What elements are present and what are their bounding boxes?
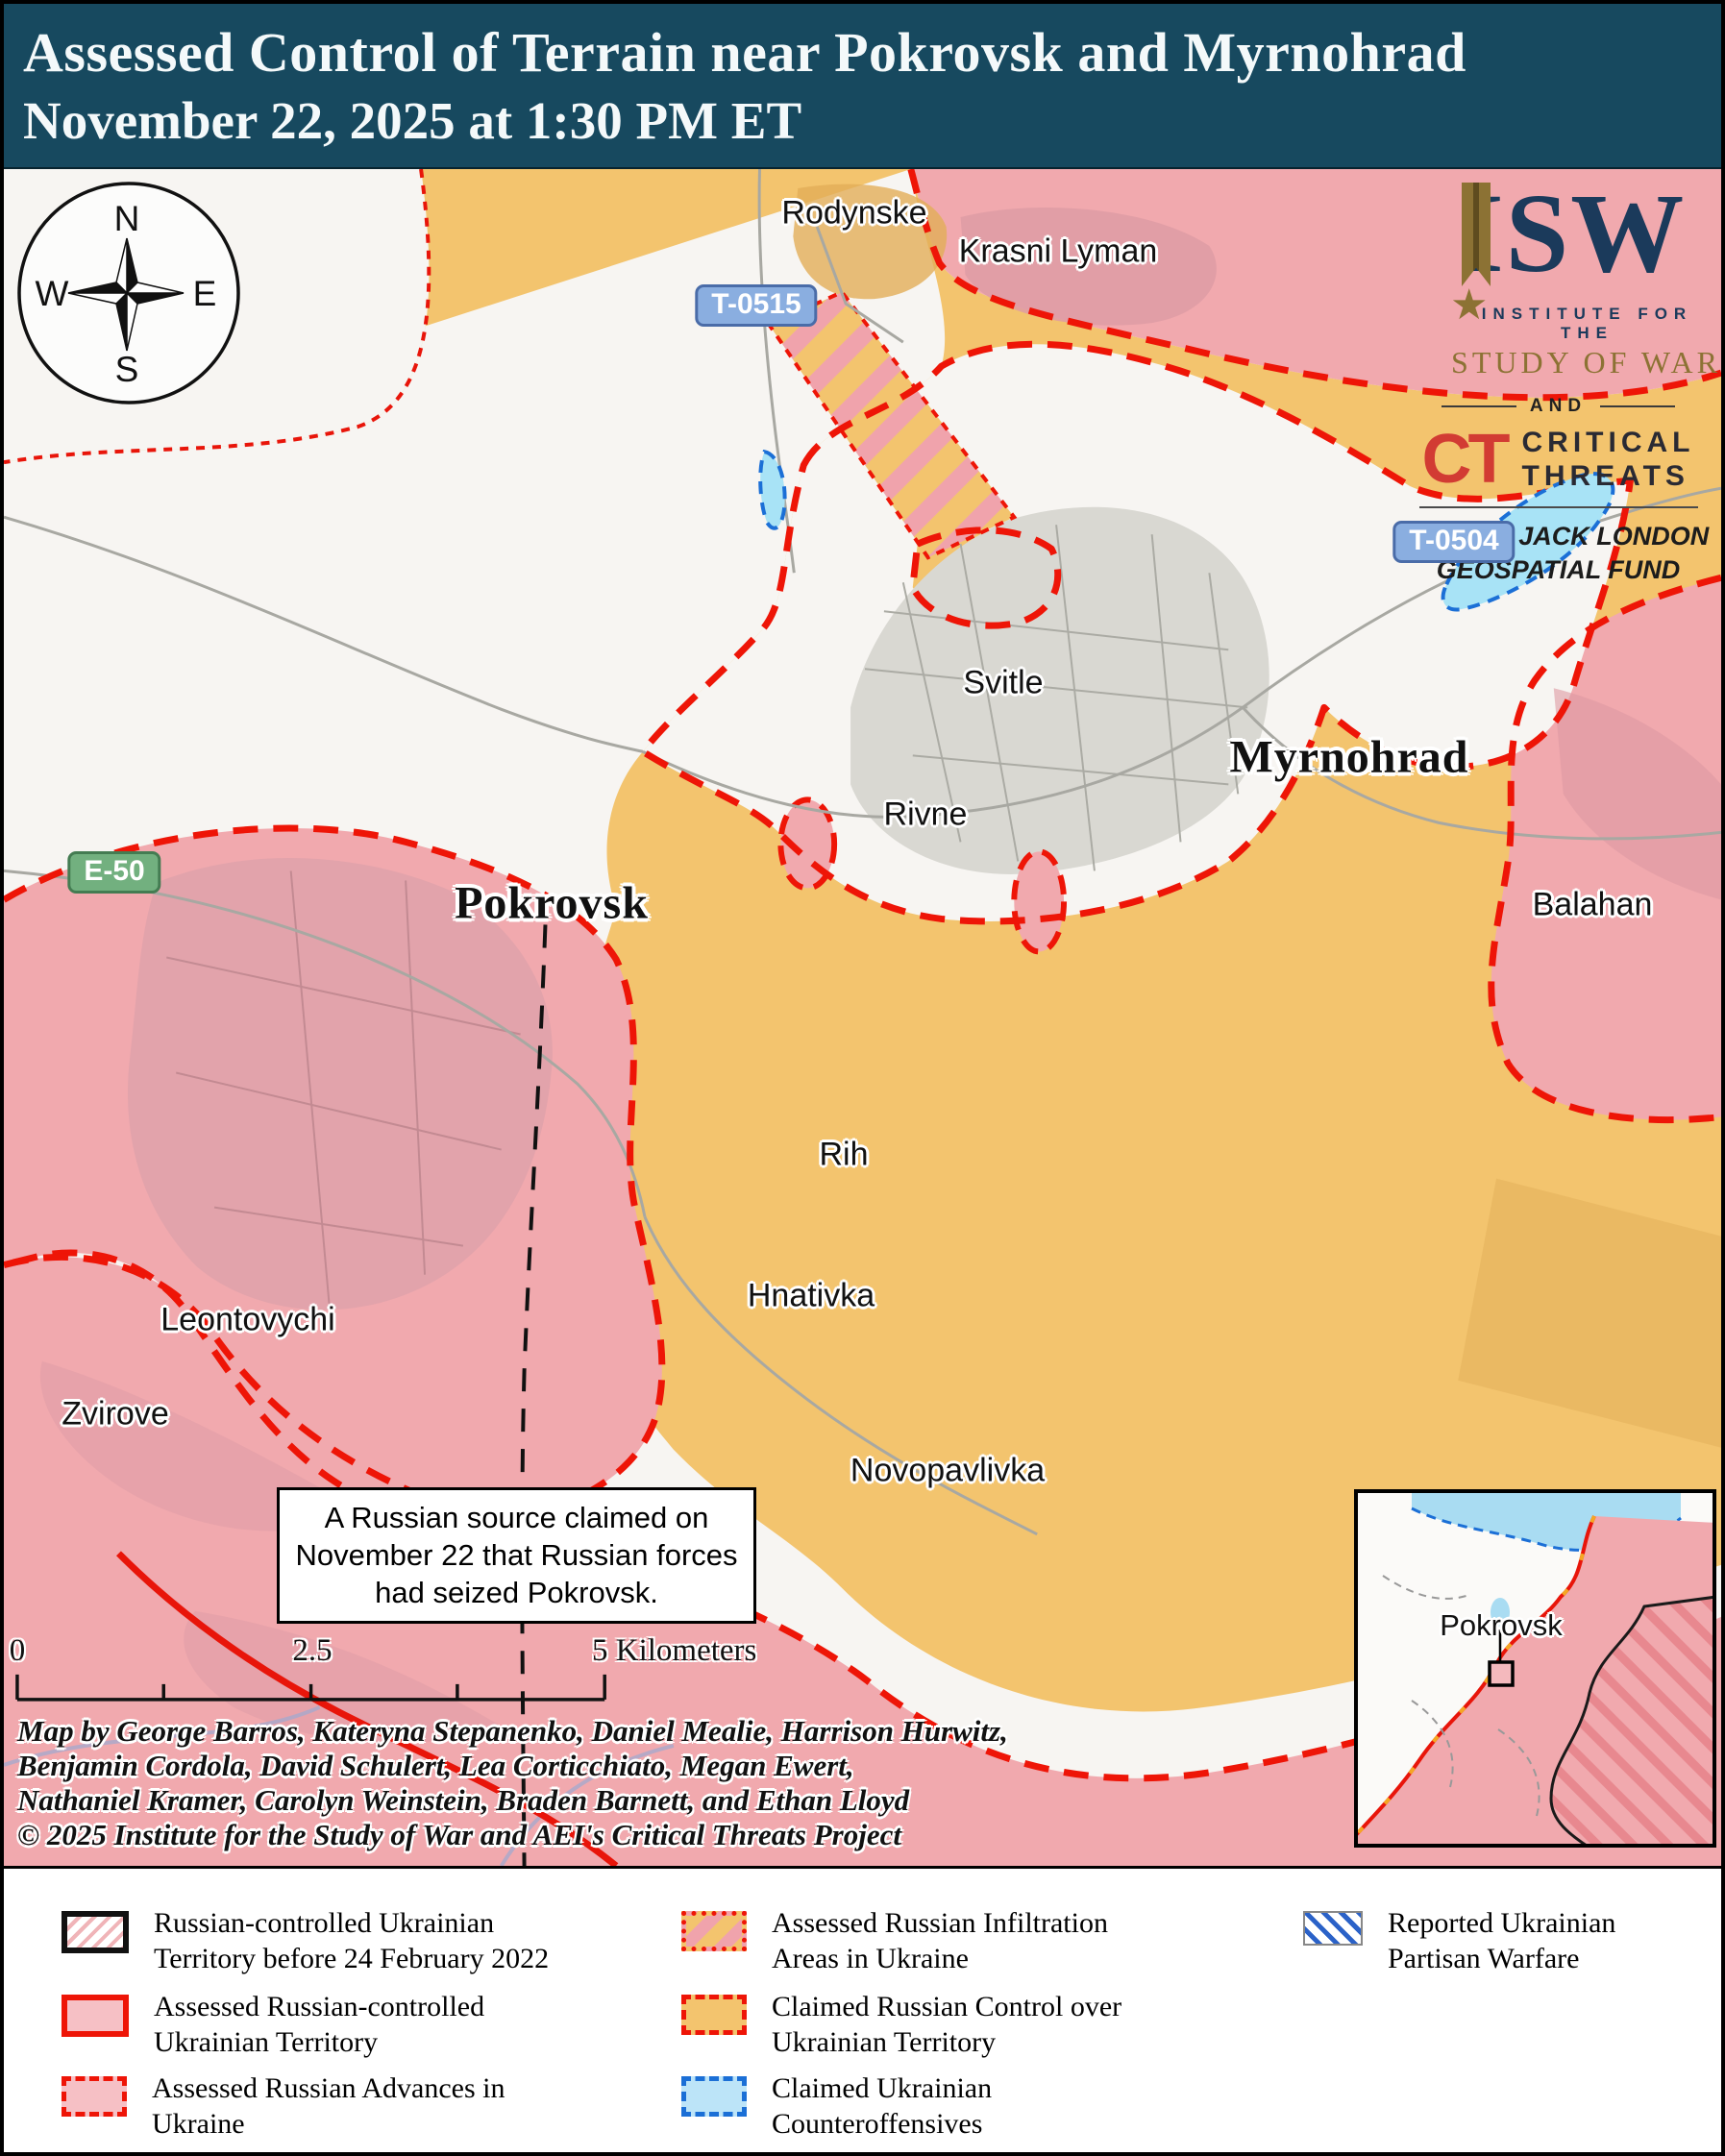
city-label-myrnohrad: Myrnohrad [1230,731,1469,784]
legend-swatch-claimed-ukrainian [681,2076,747,2117]
town-label-rih: Rih [819,1137,868,1174]
isw-star-icon: ★ [1450,281,1488,330]
legend-label: Assessed Russian-controlledUkrainian Ter… [154,1989,484,2060]
town-label-rivne: Rivne [884,796,968,834]
isw-wordmark: ISW [1392,177,1721,290]
road-shield-t-0504: T-0504 [1392,521,1515,563]
credit-line: Benjamin Cordola, David Schulert, Lea Co… [17,1749,1008,1783]
town-label-hnativka: Hnativka [748,1278,875,1315]
credit-line: Map by George Barros, Kateryna Stepanenk… [17,1714,1008,1749]
credit-line: Nathaniel Kramer, Carolyn Weinstein, Bra… [17,1783,1008,1818]
divider-line [1600,405,1675,407]
title-bar: Assessed Control of Terrain near Pokrovs… [4,4,1721,169]
town-label-novopavlivka: Novopavlivka [850,1453,1045,1490]
isw-logo: ISW ★ [1392,177,1721,297]
divider-line [1442,405,1516,407]
isw-control-map-page: Assessed Control of Terrain near Pokrovs… [0,0,1725,2156]
city-label-pokrovsk: Pokrovsk [455,877,649,930]
study-of-war: STUDY OF WAR [1448,345,1721,380]
threats-label: THREATS [1522,460,1695,494]
scale-start-label: 0 [10,1633,26,1669]
map-date: November 22, 2025 at 1:30 PM ET [23,90,1721,151]
town-label-svitle: Svitle [963,665,1043,702]
legend-label: Reported UkrainianPartisan Warfare [1388,1905,1615,1976]
legend-label: Claimed UkrainianCounteroffensives [772,2070,992,2142]
legend-item-claimed-russian: Claimed Russian Control overUkrainian Te… [681,1989,1121,2060]
road-shield-t-0515: T-0515 [695,284,817,327]
and-divider: AND [1392,396,1721,417]
town-label-balahan: Balahan [1533,887,1653,924]
note-line: had seized Pokrovsk. [285,1575,748,1612]
legend-item-infiltration: Assessed Russian InfiltrationAreas in Uk… [681,1905,1108,1976]
legend-item-russian-advances: Assessed Russian Advances inUkraine [62,2070,505,2142]
compass-south-label: S [115,350,139,389]
legend-label: Assessed Russian Advances inUkraine [152,2070,505,2142]
legend-label: Russian-controlled UkrainianTerritory be… [154,1905,549,1976]
compass-east-label: E [193,274,217,313]
legend-item-claimed-ukrainian: Claimed UkrainianCounteroffensives [681,2070,992,2142]
compass-west-label: W [36,274,69,313]
road-shield-e-50: E-50 [67,851,160,894]
critical-threats-logo: CT CRITICAL THREATS [1392,427,1721,493]
legend-item-pre2022: Russian-controlled UkrainianTerritory be… [62,1905,549,1976]
main-map: N E S W ISW ★ INSTITUTE FOR THE STUDY OF… [4,169,1721,1866]
note-line: A Russian source claimed on [285,1500,748,1537]
legend-swatch-pre2022 [62,1911,129,1953]
legend-item-partisan: Reported UkrainianPartisan Warfare [1303,1905,1615,1976]
legend-swatch-infiltration [681,1911,747,1951]
town-label-rodynske: Rodynske [781,195,926,233]
inset-pokrovsk-label: Pokrovsk [1440,1608,1562,1643]
map-legend: Russian-controlled UkrainianTerritory be… [4,1866,1721,2155]
town-label-leontovychi: Leontovychi [160,1302,334,1339]
critical-label: CRITICAL [1522,427,1695,460]
town-label-krasni-lyman: Krasni Lyman [959,233,1158,271]
institute-for-the: INSTITUTE FOR THE [1450,305,1721,343]
map-title: Assessed Control of Terrain near Pokrovs… [23,20,1721,85]
note-line: November 22 that Russian forces [285,1537,748,1575]
legend-label: Claimed Russian Control overUkrainian Te… [772,1989,1121,2060]
inset-locator-map [1354,1489,1716,1848]
ct-monogram: CT [1422,429,1507,491]
legend-swatch-partisan [1303,1911,1363,1946]
divider-line [1419,506,1698,508]
legend-label: Assessed Russian InfiltrationAreas in Uk… [772,1905,1108,1976]
compass-north-label: N [114,199,140,238]
legend-swatch-russian-controlled [62,1995,129,2037]
town-label-zvirove: Zvirove [62,1396,168,1433]
scale-middle-label: 2.5 [292,1633,332,1669]
map-credits: Map by George Barros, Kateryna Stepanenk… [17,1714,1008,1852]
claim-note-box: A Russian source claimed on November 22 … [277,1487,756,1624]
legend-swatch-russian-advances [62,2076,127,2117]
legend-item-russian-controlled: Assessed Russian-controlledUkrainian Ter… [62,1989,484,2060]
scale-end-label: 5 Kilometers [592,1633,756,1669]
compass-rose: N E S W [13,178,244,408]
credit-line: © 2025 Institute for the Study of War an… [17,1818,1008,1852]
and-label: AND [1530,396,1587,417]
legend-swatch-claimed-russian [681,1995,747,2035]
